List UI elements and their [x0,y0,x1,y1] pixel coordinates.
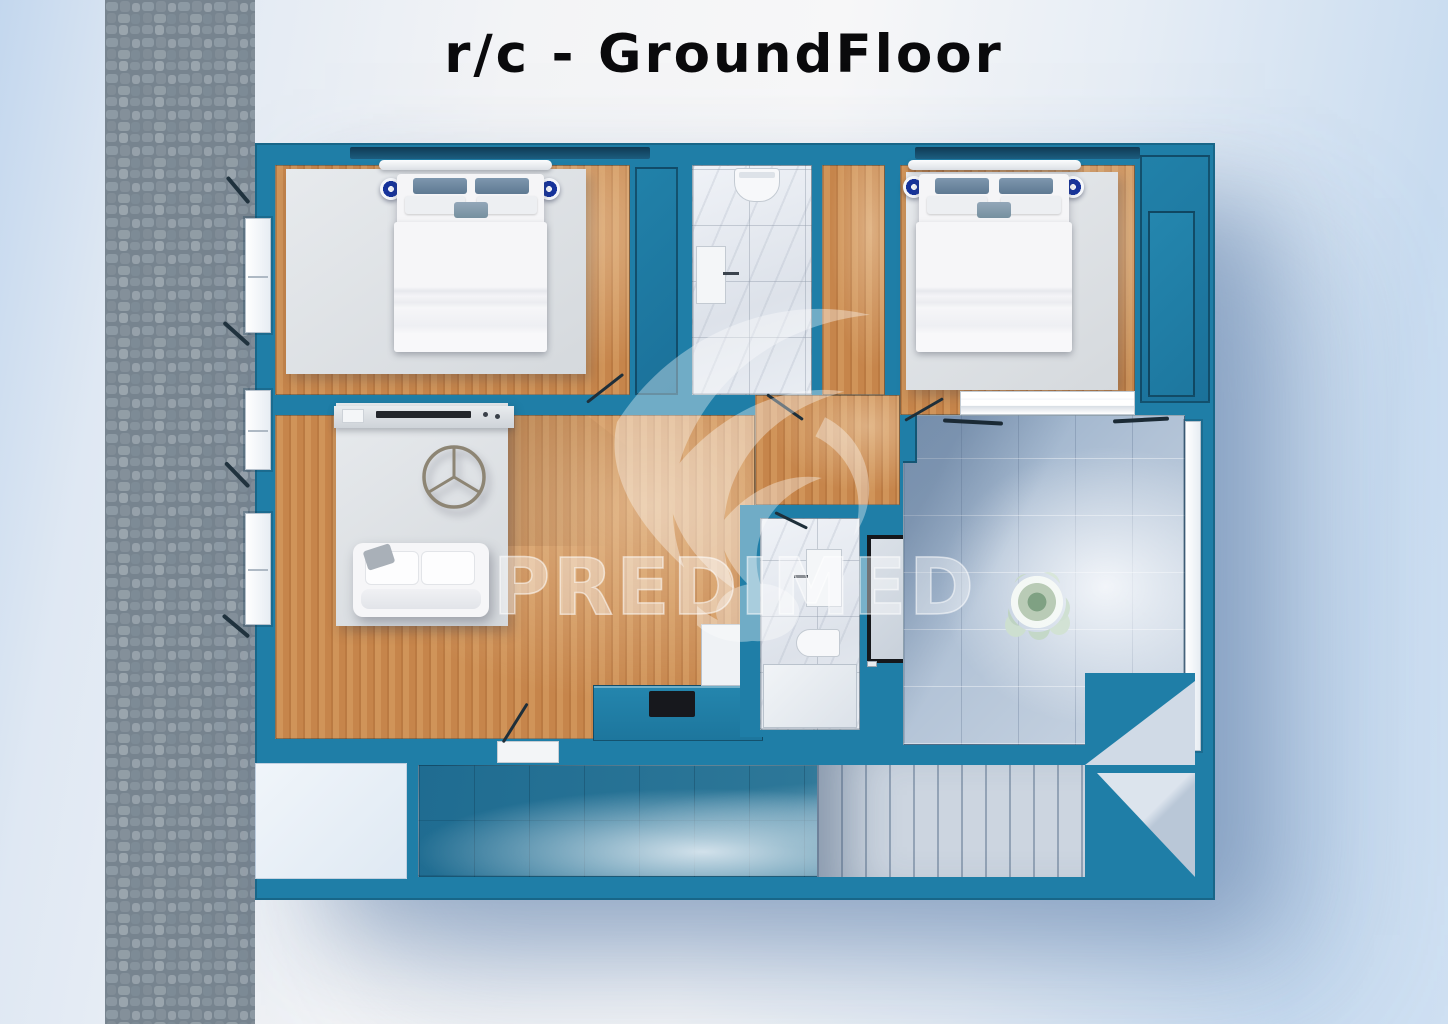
landing-triangle [1085,681,1195,765]
shower-tray [763,664,857,728]
bedroom-2-wardrobe [1148,211,1195,397]
west-window [245,218,271,333]
north-window-slot [350,147,650,159]
toilet [796,629,840,657]
stone-walkway [105,0,255,1024]
bedroom-2-headboard-shelf [908,160,1081,170]
console-box [342,409,364,423]
sofa-backrest [361,589,481,609]
window-mullion [248,430,268,432]
tv-icon [376,411,471,418]
stair-landing [1085,673,1195,877]
room-bedroom-2 [900,165,1135,415]
bedroom-2-double-bed [919,174,1069,344]
bedroom-1-headboard-shelf [379,160,552,170]
duvet [394,222,547,352]
potted-plant-icon [1008,572,1066,632]
window-mullion [248,276,268,278]
bedroom-1-wardrobe [635,167,678,395]
bedroom-1-double-bed [397,174,544,344]
cooktop-icon [649,691,695,717]
sofa-cushion [421,551,475,585]
room-bedroom-1 [275,165,630,395]
table-foot [867,661,877,667]
north-window-slot [915,147,1140,159]
bathroom-2-vanity-sink [806,549,842,607]
cobblestone-texture [105,0,255,1024]
entrance-doormat [497,741,559,763]
wall-stub [903,415,917,463]
duvet [916,222,1072,352]
landing-triangle [1097,773,1195,877]
bathroom-1-vanity-sink [696,246,726,304]
faucet-icon [794,575,808,578]
west-window [245,390,271,470]
pillow [475,178,529,194]
pillow [454,202,488,218]
sliding-door-threshold [960,391,1135,415]
west-window [245,513,271,625]
pillow [413,178,467,194]
sofa [353,543,489,617]
pillow [999,178,1053,194]
window-mullion [248,569,268,571]
pillow [935,178,989,194]
faucet-icon [723,272,739,275]
floor-plan [255,143,1215,900]
bathroom-2-floor [760,518,860,730]
hall-nook [822,165,885,395]
tv-console [334,406,514,428]
stair-flight [817,765,1085,877]
hall-arm [755,395,900,505]
decor-dot [495,414,500,419]
decor-dot [483,412,488,417]
pillow [977,202,1011,218]
porch-block [255,763,407,879]
floorplan-render: r/c - GroundFloor [0,0,1448,1024]
toilet [734,168,780,202]
room-bathroom-2 [740,505,860,737]
room-living-hall [275,415,755,739]
coffee-table-icon [421,444,487,510]
kitchen-counter [593,685,763,741]
room-bathroom-1 [692,165,812,395]
